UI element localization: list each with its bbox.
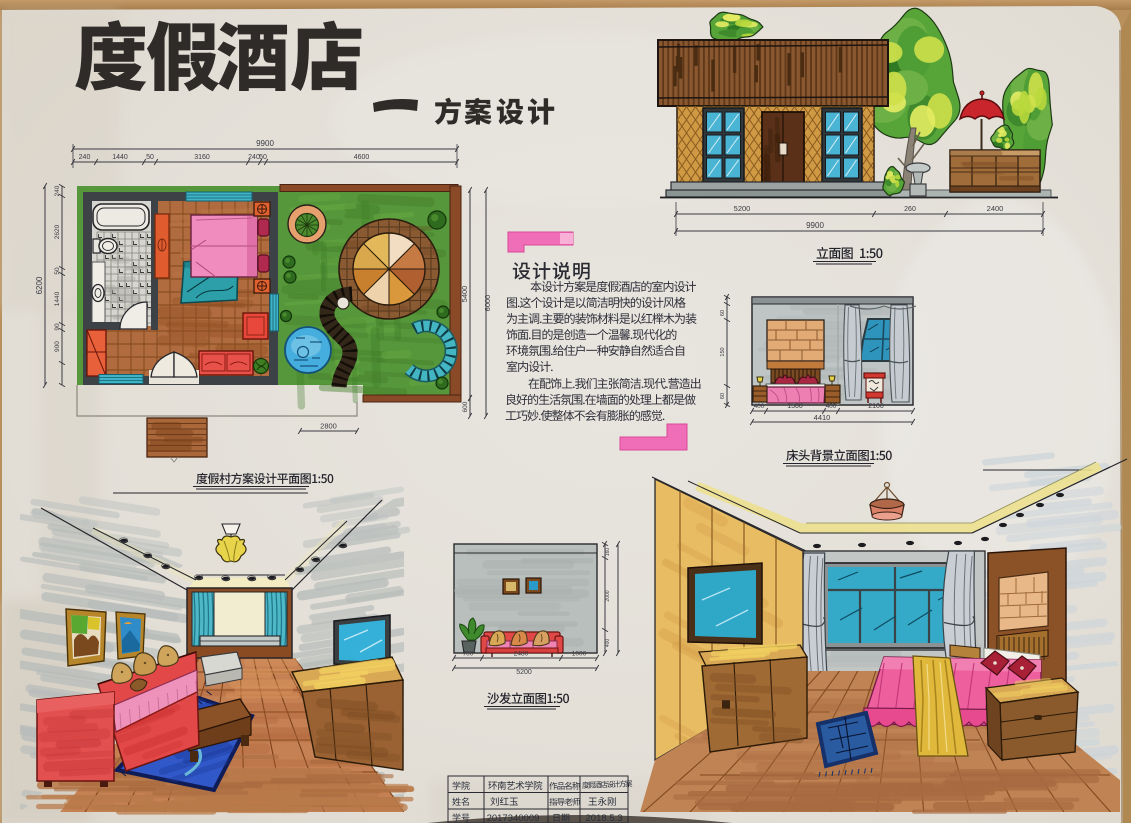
svg-text:9900: 9900 xyxy=(806,221,824,230)
svg-text:5400: 5400 xyxy=(460,286,469,303)
svg-text:400: 400 xyxy=(826,403,837,410)
svg-text:700: 700 xyxy=(463,651,474,658)
svg-text:400: 400 xyxy=(754,403,765,410)
svg-text:900: 900 xyxy=(54,341,61,352)
svg-text:5200: 5200 xyxy=(734,204,751,213)
svg-text:260: 260 xyxy=(904,206,916,213)
svg-text:1440: 1440 xyxy=(54,291,61,306)
svg-text:1440: 1440 xyxy=(112,154,128,161)
svg-text:50: 50 xyxy=(146,154,154,161)
svg-text:2620: 2620 xyxy=(54,224,61,239)
svg-text:6000: 6000 xyxy=(483,295,492,312)
svg-text:4410: 4410 xyxy=(814,413,831,422)
svg-text:2800: 2800 xyxy=(320,422,337,431)
svg-text:6200: 6200 xyxy=(35,276,44,294)
svg-text:150: 150 xyxy=(720,347,726,356)
svg-text:90: 90 xyxy=(54,323,61,331)
svg-text:4600: 4600 xyxy=(354,154,370,161)
svg-text:400: 400 xyxy=(605,639,611,648)
svg-text:2018.5.3: 2018.5.3 xyxy=(586,813,623,823)
svg-text:1000: 1000 xyxy=(572,651,587,658)
svg-text:2100: 2100 xyxy=(868,403,884,410)
svg-text:160: 160 xyxy=(605,548,611,557)
svg-text:60: 60 xyxy=(720,393,726,399)
svg-text:50: 50 xyxy=(259,154,267,161)
svg-text:60: 60 xyxy=(720,310,726,316)
svg-text:1500: 1500 xyxy=(787,403,803,410)
svg-text:600: 600 xyxy=(462,401,469,412)
svg-text:9900: 9900 xyxy=(256,139,274,148)
svg-text:2480: 2480 xyxy=(514,651,529,658)
svg-text:3160: 3160 xyxy=(194,154,210,161)
svg-text:50: 50 xyxy=(54,267,61,275)
svg-text:2017340009: 2017340009 xyxy=(487,813,540,823)
svg-text:2400: 2400 xyxy=(987,204,1004,213)
svg-text:5200: 5200 xyxy=(516,669,532,676)
svg-text:2000: 2000 xyxy=(605,590,611,601)
svg-text:240: 240 xyxy=(79,154,91,161)
